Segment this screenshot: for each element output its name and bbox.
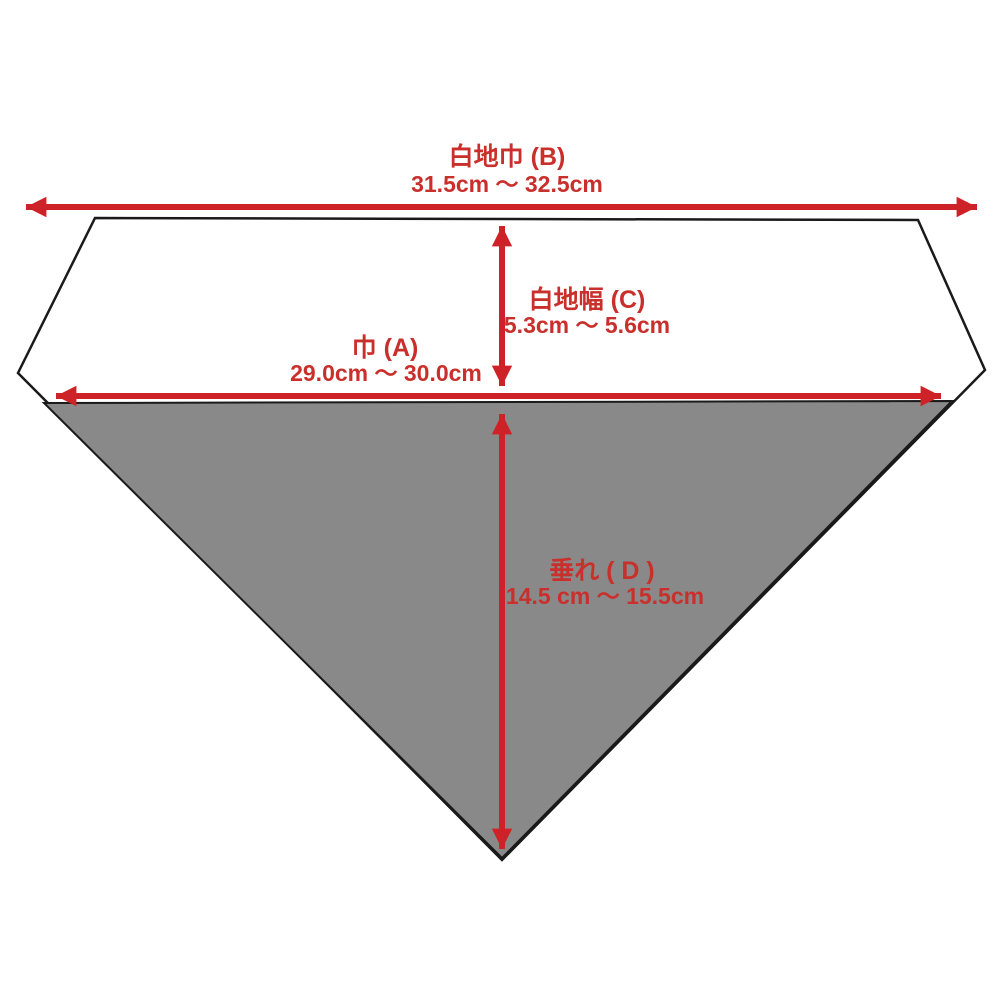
label-A: 巾 (A) [352,334,419,362]
label-C: 白地幅 (C) [529,285,646,314]
range-D: 14.5 cm ～ 15.5cm [506,583,704,609]
range-A: 29.0cm ～ 30.0cm [290,360,482,386]
bandana-dimension-diagram: 白地巾 (B) 31.5cm ～ 32.5cm 白地幅 (C) 5.3cm ～ … [0,0,1000,1000]
label-D: 垂れ ( D ) [549,557,655,585]
range-B: 31.5cm ～ 32.5cm [411,171,603,197]
label-B: 白地巾 (B) [449,142,566,171]
range-C: 5.3cm ～ 5.6cm [504,312,670,338]
bandana-tail-gray-triangle [44,401,952,858]
